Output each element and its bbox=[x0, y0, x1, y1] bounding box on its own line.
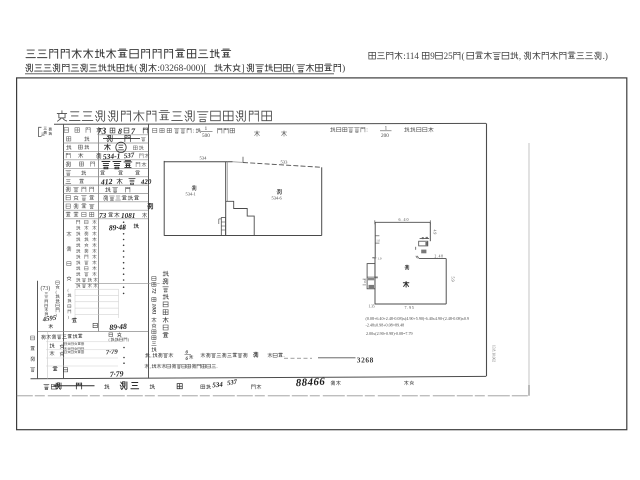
svg-text:,: , bbox=[150, 353, 151, 359]
svg-text:1.0: 1.0 bbox=[378, 257, 382, 261]
svg-text:534-1: 534-1 bbox=[186, 191, 196, 196]
svg-text:1081: 1081 bbox=[121, 212, 135, 220]
svg-text:,: , bbox=[519, 51, 521, 61]
svg-text:,: , bbox=[150, 364, 151, 370]
svg-text:5.9: 5.9 bbox=[451, 277, 456, 282]
svg-text:2.48: 2.48 bbox=[435, 255, 444, 259]
svg-text::03268-000)[: :03268-000)[ bbox=[157, 63, 206, 74]
svg-text:73: 73 bbox=[99, 212, 107, 220]
svg-text:): ) bbox=[342, 63, 345, 74]
svg-text:-2.48x0.98+0.08=89.48: -2.48x0.98+0.08=89.48 bbox=[366, 323, 405, 328]
svg-text:3268: 3268 bbox=[357, 356, 374, 365]
svg-text:533: 533 bbox=[281, 159, 289, 164]
svg-text:(73): (73) bbox=[41, 285, 51, 292]
svg-text:25: 25 bbox=[444, 51, 454, 61]
svg-text:537: 537 bbox=[123, 151, 135, 160]
svg-text:420: 420 bbox=[140, 178, 152, 187]
svg-text:.): .) bbox=[603, 51, 608, 61]
svg-text:4.9: 4.9 bbox=[433, 230, 437, 235]
svg-text:1.0: 1.0 bbox=[376, 238, 380, 242]
svg-text:(: ( bbox=[134, 63, 137, 74]
svg-text:]: ] bbox=[242, 64, 245, 74]
svg-text:6.40: 6.40 bbox=[399, 217, 410, 222]
svg-text:7.95: 7.95 bbox=[405, 305, 415, 310]
svg-text:500: 500 bbox=[202, 133, 210, 139]
svg-text:1081: 1081 bbox=[150, 304, 156, 315]
svg-text:412: 412 bbox=[100, 177, 113, 187]
svg-text:534-6: 534-6 bbox=[272, 196, 283, 201]
svg-text:13.8.10.002: 13.8.10.002 bbox=[492, 345, 496, 362]
svg-text:72: 72 bbox=[150, 288, 156, 294]
svg-text:(0.08+6.40+2.48-0.08)x(4.90+5.: (0.08+6.40+2.48-0.08)x(4.90+5.90)-6.40x4… bbox=[366, 316, 469, 321]
svg-text:.: . bbox=[216, 364, 217, 370]
svg-text:200: 200 bbox=[381, 133, 389, 139]
svg-text::114: :114 bbox=[403, 51, 419, 61]
svg-text:534-1: 534-1 bbox=[103, 151, 121, 161]
svg-text:89·48: 89·48 bbox=[109, 322, 127, 332]
svg-text:(: ( bbox=[292, 63, 295, 74]
svg-text:73: 73 bbox=[97, 127, 107, 138]
svg-text:2.00x(2.90+0.98)-0.08=7.79: 2.00x(2.90+0.98)-0.08=7.79 bbox=[366, 331, 413, 336]
svg-text:9: 9 bbox=[430, 51, 435, 61]
svg-text:534: 534 bbox=[212, 380, 224, 389]
svg-text:(: ( bbox=[462, 51, 465, 61]
svg-text:534: 534 bbox=[200, 156, 208, 161]
svg-text:7·79: 7·79 bbox=[110, 369, 124, 379]
svg-text:89·48: 89·48 bbox=[109, 223, 127, 233]
svg-text:2.0: 2.0 bbox=[363, 279, 367, 284]
svg-text:1.35: 1.35 bbox=[369, 305, 375, 309]
svg-text:88466: 88466 bbox=[296, 376, 326, 390]
